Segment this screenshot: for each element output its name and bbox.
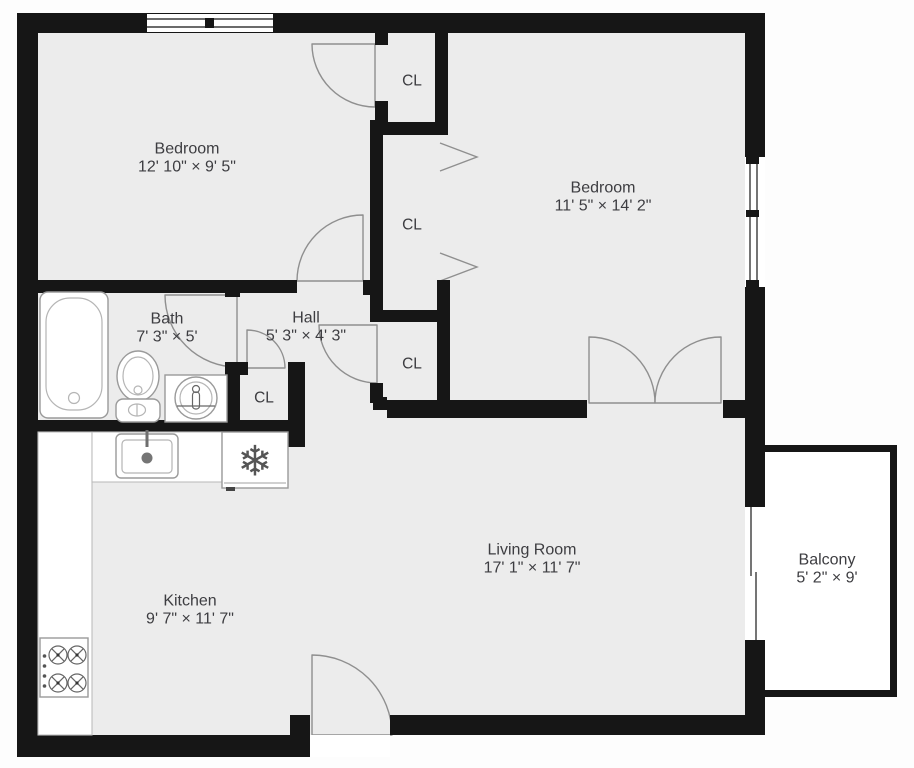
room-name: Hall [292, 310, 320, 327]
closet-label-small: CL [254, 390, 274, 407]
room-name: Kitchen [163, 593, 216, 610]
room-dimensions: 11' 5" × 14' 2" [555, 198, 652, 215]
toilet-icon [116, 351, 160, 422]
kitchen-sink-icon [116, 430, 178, 478]
room-dimensions: 7' 3" × 5' [136, 329, 197, 346]
room-name: Balcony [799, 552, 856, 569]
balcony-sliding-door [745, 507, 765, 640]
closet-label-lower: CL [402, 356, 422, 373]
room-dimensions: 5' 2" × 9' [796, 570, 857, 587]
floor-plan: ❄ Bedroom 12' 10" × 9' 5" Bedroom 11' 5"… [0, 0, 914, 768]
room-dimensions: 12' 10" × 9' 5" [138, 159, 236, 176]
room-label-balcony: Balcony 5' 2" × 9' [796, 552, 857, 587]
closet-label-middle: CL [402, 217, 422, 234]
closet-label-top: CL [402, 73, 422, 90]
bathtub-icon [40, 292, 108, 418]
room-dimensions: 9' 7" × 11' 7" [146, 611, 234, 628]
bath-sink-icon [165, 375, 227, 422]
room-dimensions: 5' 3" × 4' 3" [266, 328, 346, 345]
refrigerator-icon: ❄ [222, 432, 288, 491]
room-label-living-room: Living Room 17' 1" × 11' 7" [484, 542, 581, 577]
snowflake-icon: ❄ [237, 438, 272, 485]
room-dimensions: 17' 1" × 11' 7" [484, 560, 581, 577]
entry-doorway-gap [310, 735, 390, 757]
room-name: Living Room [488, 542, 577, 559]
room-name: Bedroom [571, 180, 636, 197]
floor-plan-page: ❄ Bedroom 12' 10" × 9' 5" Bedroom 11' 5"… [0, 0, 914, 768]
stove-icon [40, 638, 88, 697]
room-name: Bath [151, 311, 184, 328]
window-bedroom-left [147, 14, 273, 32]
window-bedroom-right [745, 157, 765, 287]
room-name: Bedroom [155, 141, 220, 158]
